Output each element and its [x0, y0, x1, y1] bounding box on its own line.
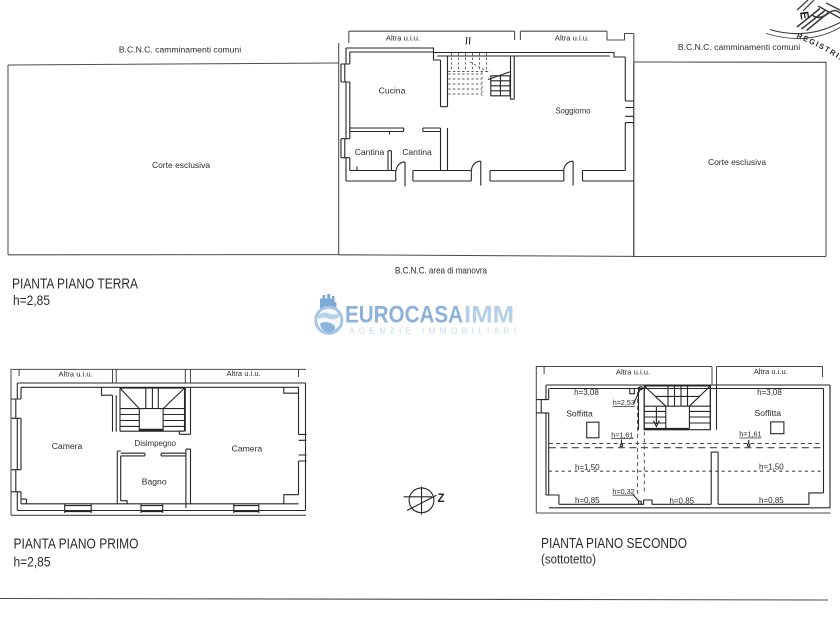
svg-text:h=1,50: h=1,50	[759, 463, 784, 472]
svg-text:Cantina: Cantina	[355, 147, 385, 157]
svg-text:h=2,85: h=2,85	[14, 555, 51, 570]
svg-text:Altra u.i.u.: Altra u.i.u.	[386, 34, 420, 43]
svg-text:Altra u.i.u.: Altra u.i.u.	[555, 33, 589, 42]
svg-text:h=0,85: h=0,85	[669, 497, 694, 506]
svg-text:PIANTA PIANO TERRA: PIANTA PIANO TERRA	[12, 277, 138, 293]
svg-text:EUROCASA: EUROCASA	[345, 302, 463, 329]
svg-text:Soffitta: Soffitta	[754, 408, 781, 418]
svg-text:IMM: IMM	[464, 302, 514, 329]
svg-text:h=3,08: h=3,08	[574, 388, 599, 397]
svg-text:Bagno: Bagno	[142, 476, 167, 486]
svg-text:h=0,85: h=0,85	[759, 496, 784, 505]
svg-text:B.C.N.C. camminamenti comuni: B.C.N.C. camminamenti comuni	[119, 45, 241, 55]
svg-text:Altra u.i.u.: Altra u.i.u.	[227, 369, 261, 378]
svg-text:B.C.N.C. area di manovra: B.C.N.C. area di manovra	[395, 266, 487, 276]
svg-text:(sottotetto): (sottotetto)	[541, 552, 596, 567]
svg-text:Corte esclusiva: Corte esclusiva	[708, 157, 766, 167]
svg-text:E: E	[797, 10, 812, 20]
svg-text:Camera: Camera	[52, 441, 83, 451]
svg-text:h=1,61: h=1,61	[739, 430, 761, 439]
svg-text:h=1,50: h=1,50	[575, 463, 600, 472]
svg-text:Corte esclusiva: Corte esclusiva	[152, 160, 210, 170]
svg-text:Cucina: Cucina	[379, 86, 406, 96]
svg-text:h=1,61: h=1,61	[611, 430, 633, 439]
svg-text:Cantina: Cantina	[402, 147, 432, 157]
svg-text:PIANTA PIANO PRIMO: PIANTA PIANO PRIMO	[14, 537, 139, 553]
svg-text:h=2,53: h=2,53	[613, 398, 635, 407]
svg-text:PIANTA PIANO SECONDO: PIANTA PIANO SECONDO	[541, 536, 687, 552]
svg-text:Disimpegno: Disimpegno	[135, 438, 177, 448]
svg-text:Camera: Camera	[232, 444, 263, 454]
svg-text:Soffitta: Soffitta	[566, 409, 593, 419]
svg-text:Altra u.i.u.: Altra u.i.u.	[754, 367, 788, 376]
svg-text:Altra u.i.u.: Altra u.i.u.	[616, 368, 650, 377]
svg-text:h=0,32: h=0,32	[612, 487, 634, 496]
svg-text:B.C.N.C. camminamenti comuni: B.C.N.C. camminamenti comuni	[678, 42, 800, 52]
svg-text:h=2,85: h=2,85	[13, 293, 50, 308]
svg-text:Altra u.i.u.: Altra u.i.u.	[59, 369, 93, 378]
svg-text:h=3,08: h=3,08	[757, 388, 782, 397]
svg-text:h=0,85: h=0,85	[575, 496, 600, 505]
svg-text:Soggiorno: Soggiorno	[556, 106, 591, 116]
svg-text:Z: Z	[438, 493, 445, 505]
